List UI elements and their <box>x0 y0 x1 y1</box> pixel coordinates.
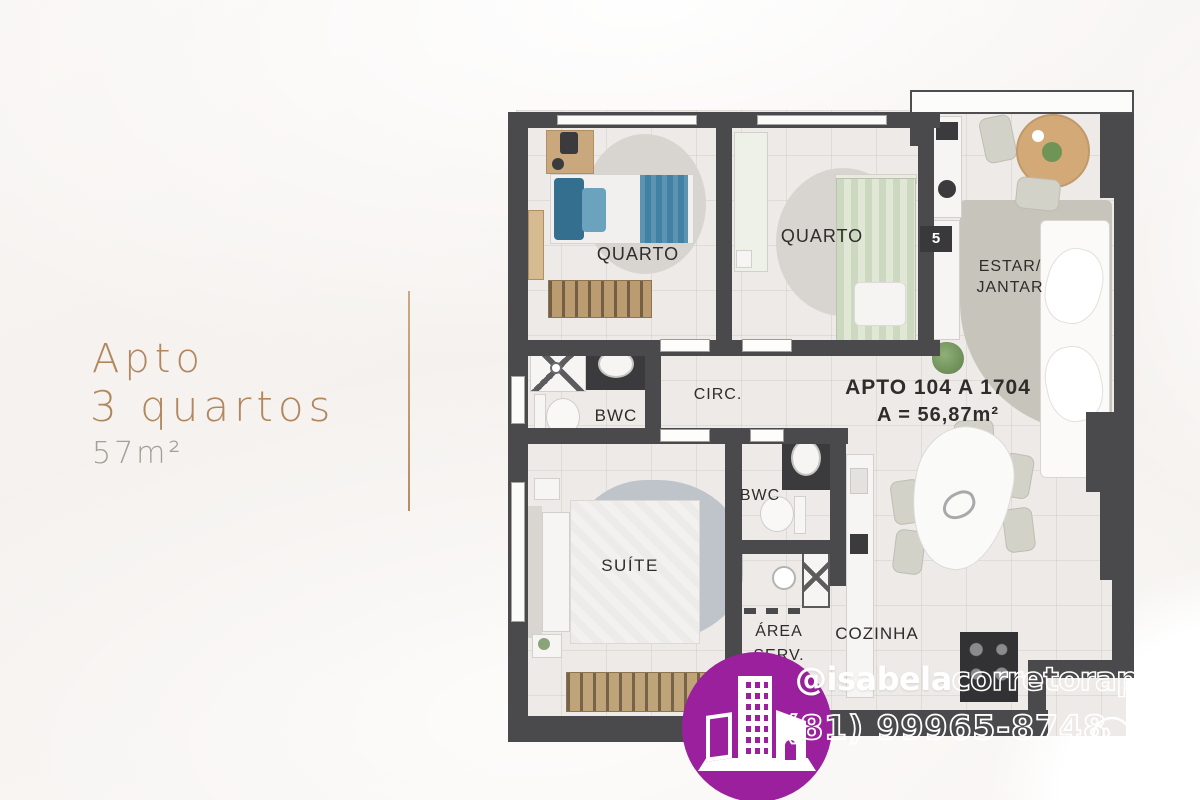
pillow-dark-blue <box>554 178 584 240</box>
wall-balcony-corner <box>910 114 926 146</box>
floor-plan: 5 QUARTO QUARTO ESTAR/ JANTAR CIRC. BWC … <box>508 88 1138 744</box>
whatsapp-icon <box>1084 712 1138 766</box>
label-cozinha: COZINHA <box>807 624 947 644</box>
window <box>511 376 525 424</box>
sink-bwc2 <box>791 440 821 476</box>
label-quarto2: QUARTO <box>757 226 887 247</box>
promo-image: Apto 3 quartos 57m² <box>0 0 1200 800</box>
wall-pillar <box>1086 412 1134 492</box>
wall <box>716 112 732 356</box>
balcony-window-band <box>910 90 1134 114</box>
door <box>750 429 784 442</box>
label-bwc1: BWC <box>571 406 661 426</box>
wall <box>1100 490 1134 580</box>
headline-apto: Apto <box>92 336 205 382</box>
label-bwc2: BWC <box>720 487 800 505</box>
desk-item <box>552 158 564 170</box>
side-shelf <box>528 210 544 280</box>
wall <box>508 112 528 742</box>
instagram-handle: @isabelacorretorape <box>795 660 1160 698</box>
wall <box>508 340 940 356</box>
wall <box>830 428 846 586</box>
phone-number: (81) 99965-8748 <box>784 708 1107 747</box>
wall-balcony-corner <box>1100 114 1134 198</box>
label-quarto1: QUARTO <box>573 244 703 265</box>
label-circ: CIRC. <box>668 386 768 404</box>
floor-marker: 5 <box>920 226 952 252</box>
nightstand <box>534 478 560 500</box>
dining-chair <box>1014 176 1061 212</box>
stool-quarto2 <box>736 250 752 268</box>
sink-basin <box>938 180 956 198</box>
pillow-light-blue <box>582 188 606 232</box>
buildings-icon-left <box>706 712 732 762</box>
handle-solid-part: @isabela <box>795 660 952 698</box>
door <box>660 429 710 442</box>
headline-3-quartos: 3 quartos <box>90 382 335 431</box>
window <box>511 482 525 622</box>
desk-chair <box>560 132 578 154</box>
unit-number: APTO 104 A 1704 <box>818 376 1058 400</box>
door <box>742 339 792 352</box>
service-divider-dashed <box>744 608 808 614</box>
pillows-suite <box>542 512 570 632</box>
washer <box>802 546 830 608</box>
plate <box>1032 130 1044 142</box>
counter-sink <box>850 468 868 494</box>
headboard-suite <box>528 506 542 638</box>
handle-outline-part: corretorape <box>952 660 1160 698</box>
label-estar-jantar: ESTAR/ JANTAR <box>950 256 1070 298</box>
wardrobe-quarto1 <box>548 280 652 318</box>
pillow-quarto2 <box>854 282 906 326</box>
window <box>557 115 697 125</box>
table-plant <box>1042 142 1062 162</box>
label-suite: SUÍTE <box>570 556 690 576</box>
laundry-tub <box>772 566 796 590</box>
plant-small <box>538 638 550 650</box>
wall <box>742 540 842 554</box>
blanket-blue <box>640 175 688 243</box>
label-estar-line2: JANTAR <box>950 277 1070 298</box>
label-estar-line1: ESTAR/ <box>950 256 1070 277</box>
door <box>660 339 710 352</box>
counter-appliance <box>850 534 868 554</box>
shower-drain <box>550 362 562 374</box>
vertical-divider <box>408 291 410 511</box>
unit-area: A = 56,87m² <box>818 404 1058 427</box>
building-windows-grid <box>742 682 768 754</box>
headline-area: 57m² <box>92 436 183 471</box>
window <box>757 115 887 125</box>
